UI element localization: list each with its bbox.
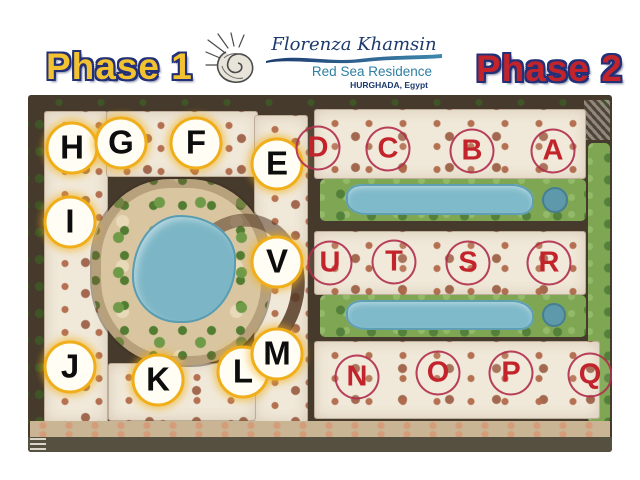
- building-marker-U: U: [308, 241, 353, 286]
- building-letter: S: [458, 247, 477, 280]
- building-letter: I: [65, 202, 74, 240]
- building-marker-B: B: [450, 129, 495, 174]
- building-letter: C: [378, 133, 399, 166]
- building-letter: R: [539, 247, 560, 280]
- logo: Florenza Khamsin Red Sea Residence HURGH…: [204, 32, 442, 94]
- building-marker-C: C: [366, 127, 411, 172]
- top-road-bushes: [28, 95, 612, 107]
- building-marker-A: A: [531, 129, 576, 174]
- building-letter: M: [263, 334, 291, 372]
- building-letter: H: [60, 128, 84, 166]
- building-marker-I: I: [44, 196, 97, 249]
- building-letter: T: [385, 246, 403, 279]
- building-letter: N: [347, 361, 368, 394]
- building-letter: E: [266, 144, 288, 182]
- building-marker-T: T: [372, 240, 417, 285]
- building-marker-D: D: [296, 126, 341, 171]
- building-letter: U: [320, 247, 341, 280]
- building-marker-O: O: [416, 351, 461, 396]
- building-letter: K: [146, 360, 170, 398]
- phase2-label-text: Phase 2: [476, 48, 623, 89]
- building-letter: O: [427, 357, 450, 390]
- logo-swoosh-wave: [266, 53, 442, 64]
- building-letter: J: [61, 347, 79, 385]
- logo-location: HURGHADA, Egypt: [350, 80, 442, 91]
- building-marker-Q: Q: [568, 353, 613, 398]
- building-marker-F: F: [170, 117, 223, 170]
- seashell-icon: [204, 32, 266, 94]
- building-letter: D: [308, 132, 329, 165]
- logo-subtitle: Red Sea Residence: [312, 64, 442, 80]
- building-letter: V: [266, 242, 288, 280]
- building-marker-N: N: [335, 355, 380, 400]
- phase2-upper-pool: [346, 184, 534, 215]
- building-marker-M: M: [251, 328, 304, 381]
- phase1-label-text: Phase 1: [46, 46, 193, 87]
- building-marker-P: P: [489, 351, 534, 396]
- building-marker-V: V: [251, 236, 304, 289]
- building-letter: Q: [579, 359, 602, 392]
- building-letter: G: [108, 123, 134, 161]
- phase2-upper-pond: [542, 187, 568, 213]
- logo-text: Florenza Khamsin Red Sea Residence HURGH…: [266, 32, 442, 91]
- building-marker-G: G: [95, 117, 148, 170]
- building-letter: F: [186, 123, 206, 161]
- crosswalk: [30, 438, 46, 451]
- building-letter: P: [501, 357, 520, 390]
- top-right-parking: [584, 100, 610, 140]
- building-marker-J: J: [44, 341, 97, 394]
- phase2-lower-pool: [346, 300, 534, 330]
- building-marker-H: H: [46, 122, 99, 175]
- logo-name: Florenza Khamsin: [266, 35, 442, 55]
- phase2-label: Phase 2: [476, 48, 623, 90]
- building-marker-R: R: [527, 241, 572, 286]
- building-marker-S: S: [446, 241, 491, 286]
- site-map: HGFEIVJKLMDCBAUTSRNOPQ: [28, 95, 612, 452]
- beach-promenade: [30, 421, 610, 437]
- phase1-label: Phase 1: [46, 46, 193, 88]
- page: Phase 1 Florenza Khamsin: [0, 0, 640, 480]
- building-marker-K: K: [132, 354, 185, 407]
- building-letter: B: [462, 135, 483, 168]
- bottom-road: [28, 437, 612, 452]
- phase2-lower-pond: [542, 303, 566, 327]
- building-letter: A: [543, 135, 564, 168]
